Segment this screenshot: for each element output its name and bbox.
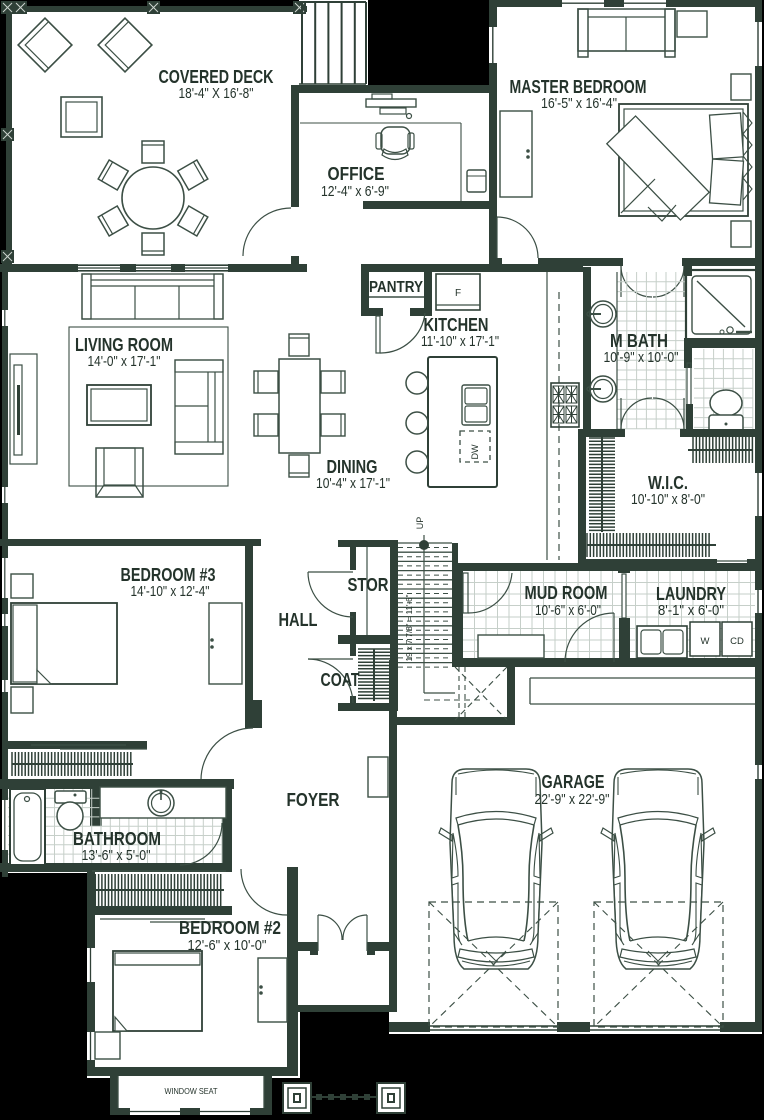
svg-text:12'-4" x 6'-9": 12'-4" x 6'-9": [321, 183, 389, 200]
svg-text:M BATH: M BATH: [610, 331, 668, 351]
svg-text:CD: CD: [730, 636, 744, 647]
svg-text:10'-9" x 10'-0": 10'-9" x 10'-0": [604, 349, 679, 366]
svg-text:PANTRY: PANTRY: [369, 279, 423, 296]
svg-text:11'-10" x 17'-1": 11'-10" x 17'-1": [421, 333, 499, 350]
svg-text:KITCHEN: KITCHEN: [424, 315, 489, 335]
svg-text:LAUNDRY: LAUNDRY: [656, 584, 726, 604]
svg-text:UP: UP: [415, 517, 425, 530]
svg-text:HALL: HALL: [279, 610, 318, 630]
svg-text:10'-6" x 6'-0": 10'-6" x 6'-0": [535, 602, 601, 619]
svg-text:FOYER: FOYER: [287, 790, 340, 810]
svg-text:10'-4" x 17'-1": 10'-4" x 17'-1": [316, 475, 390, 492]
svg-text:F: F: [455, 288, 461, 299]
svg-text:14'-0" x 17'-1": 14'-0" x 17'-1": [88, 353, 161, 370]
svg-text:12'-6" x 10'-0": 12'-6" x 10'-0": [188, 937, 267, 954]
svg-text:18'-4" X 16'-8": 18'-4" X 16'-8": [179, 85, 254, 102]
svg-text:BEDROOM #3: BEDROOM #3: [121, 565, 216, 585]
svg-text:BEDROOM #2: BEDROOM #2: [179, 918, 281, 938]
svg-text:10'-10" x 8'-0": 10'-10" x 8'-0": [631, 491, 705, 508]
svg-text:GARAGE: GARAGE: [542, 772, 605, 792]
svg-text:MASTER BEDROOM: MASTER BEDROOM: [510, 77, 647, 97]
svg-text:16'-5" x 16'-4": 16'-5" x 16'-4": [541, 95, 617, 112]
svg-text:W.I.C.: W.I.C.: [648, 473, 688, 493]
svg-text:DINING: DINING: [327, 457, 378, 477]
svg-text:DW: DW: [470, 444, 480, 459]
svg-text:BATHROOM: BATHROOM: [73, 829, 161, 849]
svg-text:COAT: COAT: [321, 670, 360, 690]
svg-text:COVERED DECK: COVERED DECK: [159, 67, 274, 87]
svg-text:OFFICE: OFFICE: [328, 164, 385, 184]
svg-text:W: W: [701, 636, 710, 647]
svg-text:22'-9" x 22'-9": 22'-9" x 22'-9": [535, 791, 610, 808]
svg-text:WINDOW SEAT: WINDOW SEAT: [165, 1086, 218, 1096]
svg-text:14'-10" x 12'-4": 14'-10" x 12'-4": [131, 583, 210, 600]
svg-text:MUD ROOM: MUD ROOM: [525, 583, 608, 603]
svg-text:LIVING ROOM: LIVING ROOM: [75, 335, 173, 355]
svg-text:STOR: STOR: [348, 575, 389, 595]
svg-text:13'-6" x 5'-0": 13'-6" x 5'-0": [82, 847, 151, 864]
svg-text:8'-1" x 6'-0": 8'-1" x 6'-0": [658, 602, 724, 619]
svg-text:19 x 7 7/8" = 11'-6": 19 x 7 7/8" = 11'-6": [405, 594, 414, 661]
